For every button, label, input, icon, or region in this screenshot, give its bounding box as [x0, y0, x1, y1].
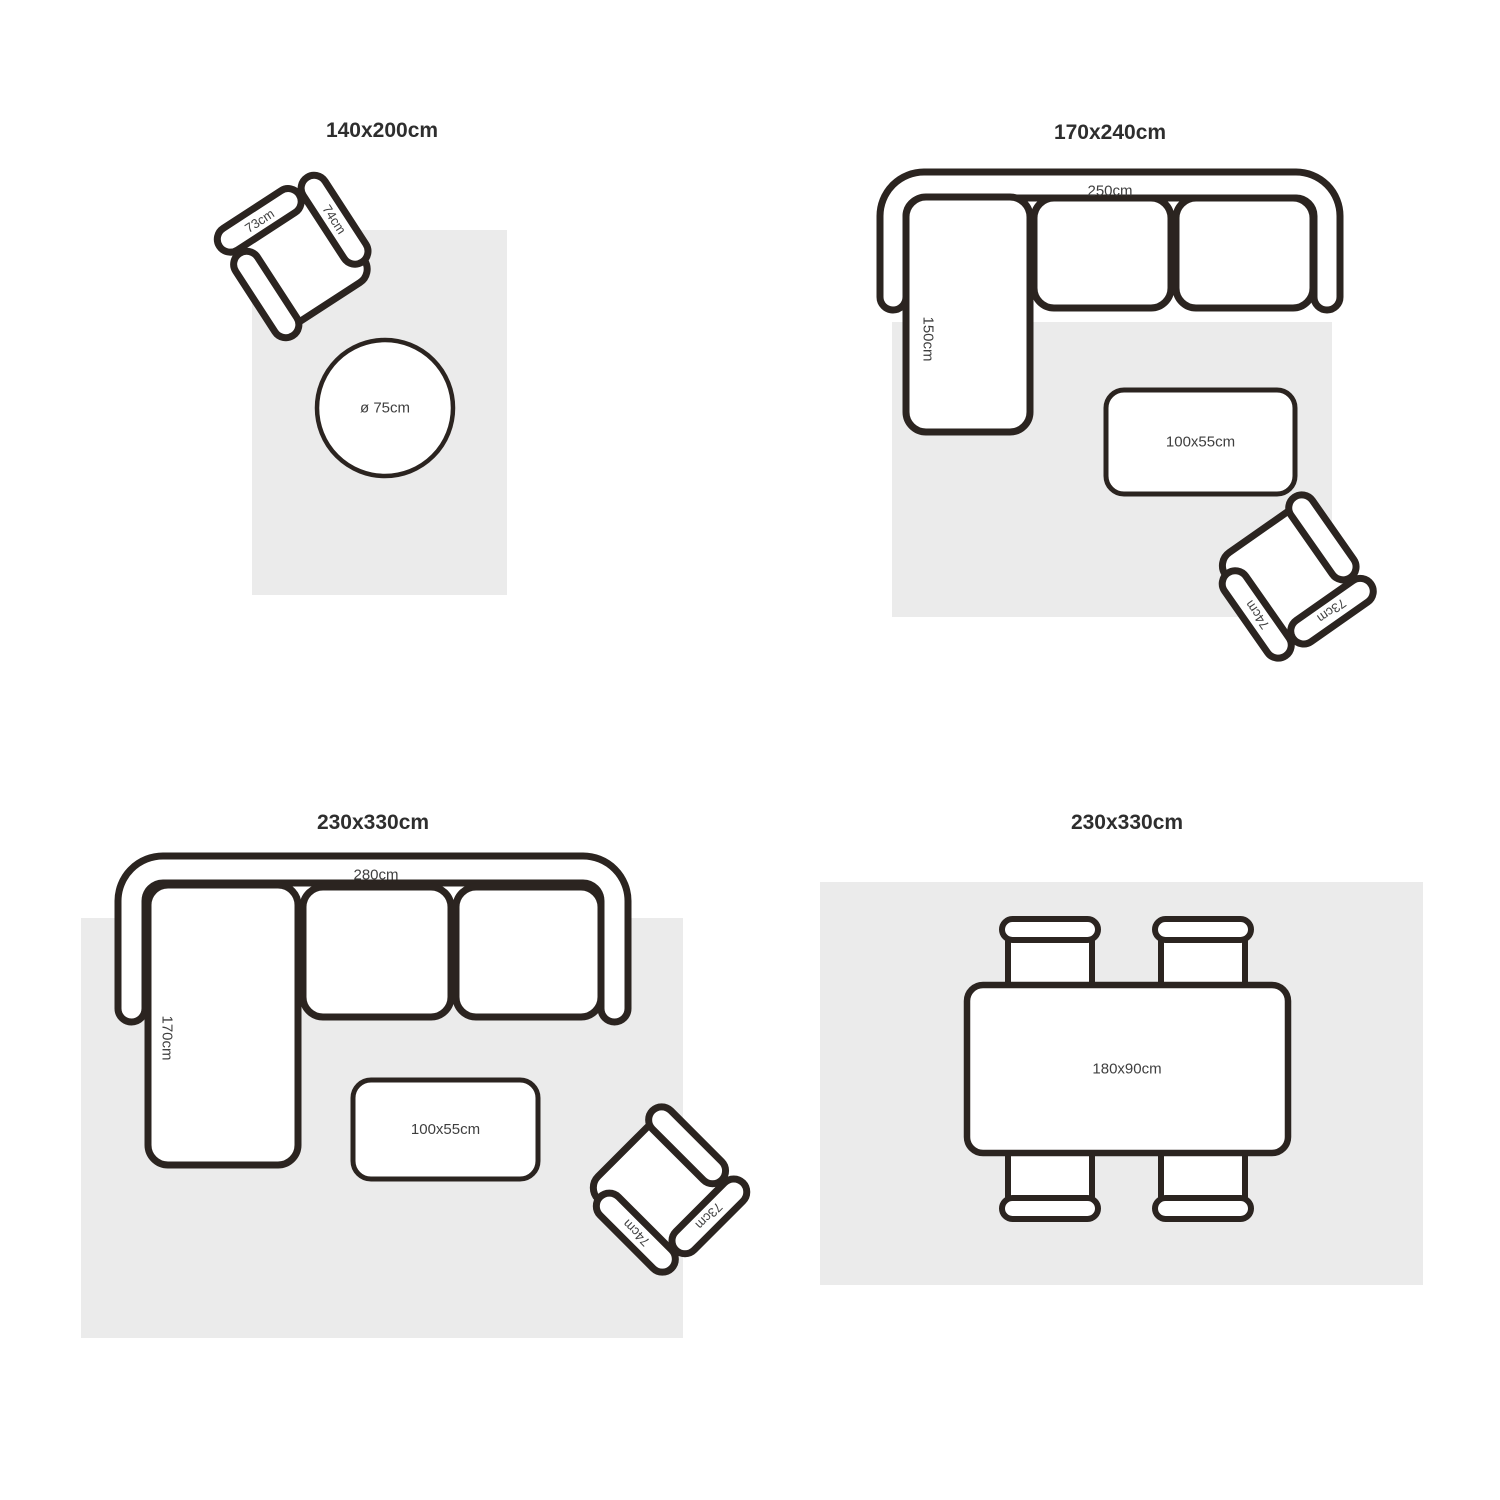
- coffee-table: 100x55cm: [1101, 385, 1300, 499]
- sofa-width-dimension: 280cm: [353, 867, 398, 884]
- rug-size-title-230x330-sofa: 230x330cm: [317, 811, 429, 835]
- round-side-table: ø 75cm: [312, 335, 458, 481]
- sofa-width-dimension: 250cm: [1087, 183, 1132, 200]
- rug-size-title-140x200: 140x200cm: [326, 119, 438, 143]
- sofa-chaise-dimension: 170cm: [159, 1015, 176, 1060]
- sofa-seat-cushion: [303, 887, 451, 1017]
- rug-size-title-170x240: 170x240cm: [1054, 121, 1166, 145]
- dining-chair-back: [1155, 919, 1251, 940]
- coffee-table-dimension: 100x55cm: [1166, 434, 1235, 451]
- sofa-chaise: [906, 197, 1030, 432]
- sofa-seat-cushion: [1176, 198, 1313, 308]
- coffee-table: 100x55cm: [348, 1075, 543, 1184]
- sofa-seat-cushion: [456, 887, 601, 1017]
- rug-size-guide-diagram: 140x200cm 73cm 74cm ø 75cm 170x240cm 250…: [0, 0, 1500, 1500]
- sofa-seat-cushion: [1034, 198, 1171, 308]
- dining-set: 180x90cm: [956, 906, 1304, 1229]
- rug-size-title-230x330-dining: 230x330cm: [1071, 811, 1183, 835]
- sofa-chaise-dimension: 150cm: [920, 316, 937, 361]
- round-table-dimension: ø 75cm: [360, 400, 410, 417]
- dining-chair-back: [1155, 1198, 1251, 1219]
- dining-chair-back: [1002, 1198, 1098, 1219]
- dining-chair-back: [1002, 919, 1098, 940]
- dining-table-dimension: 180x90cm: [1092, 1061, 1161, 1078]
- coffee-table-dimension: 100x55cm: [411, 1121, 480, 1138]
